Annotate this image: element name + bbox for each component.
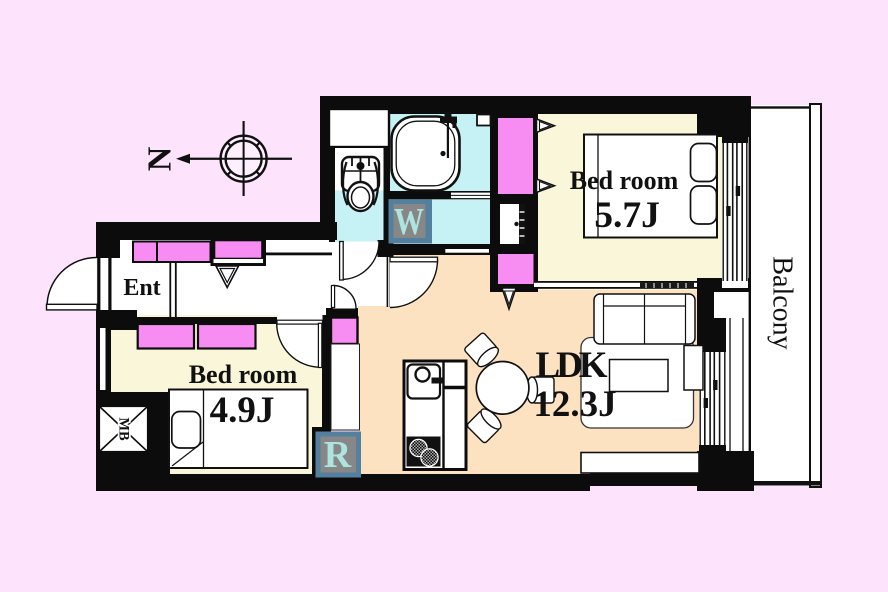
svg-text:N: N [142, 146, 179, 171]
svg-text:LDK: LDK [536, 345, 608, 386]
svg-text:4.9J: 4.9J [210, 390, 275, 431]
svg-text:R: R [324, 434, 352, 476]
svg-text:12.3J: 12.3J [533, 384, 616, 425]
svg-text:Bed room: Bed room [570, 166, 679, 195]
svg-text:Ent: Ent [123, 275, 160, 301]
svg-text:Balcony: Balcony [767, 256, 798, 349]
svg-text:Bed room: Bed room [189, 360, 298, 389]
svg-text:W: W [394, 201, 424, 243]
svg-text:5.7J: 5.7J [594, 195, 660, 236]
svg-text:MB: MB [116, 417, 132, 441]
